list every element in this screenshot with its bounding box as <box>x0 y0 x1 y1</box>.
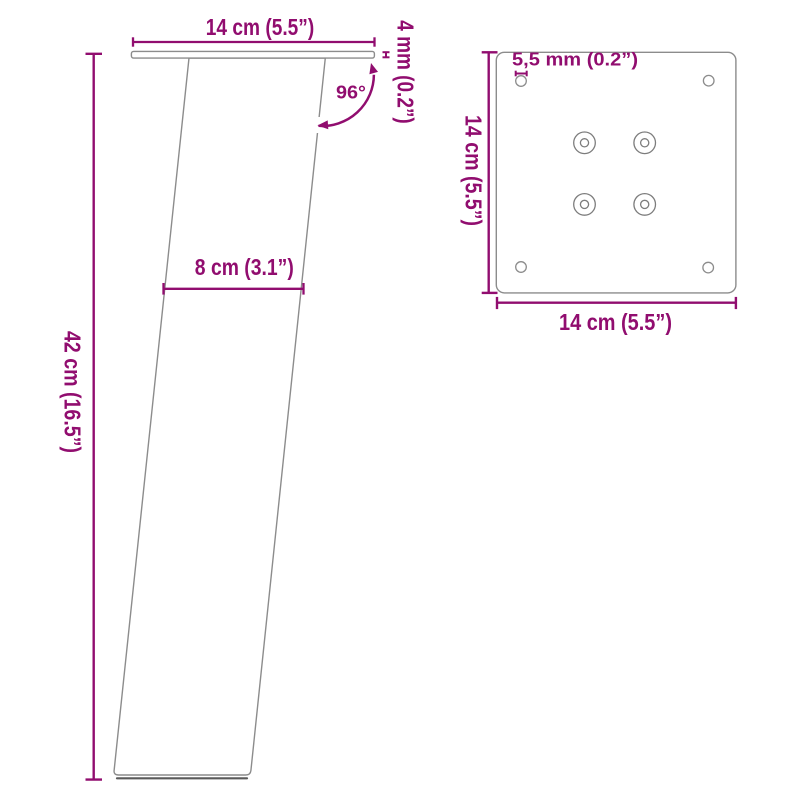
svg-text:5,5 mm (0.2”): 5,5 mm (0.2”) <box>512 50 638 70</box>
svg-text:42 cm (16.5”): 42 cm (16.5”) <box>60 331 86 453</box>
svg-text:14 cm (5.5”): 14 cm (5.5”) <box>206 14 315 40</box>
svg-text:14 cm (5.5”): 14 cm (5.5”) <box>461 115 487 226</box>
svg-text:8 cm (3.1”): 8 cm (3.1”) <box>195 254 294 280</box>
svg-text:96°: 96° <box>336 83 366 103</box>
svg-text:14 cm (5.5”): 14 cm (5.5”) <box>559 309 672 335</box>
svg-text:4 mm (0.2”): 4 mm (0.2”) <box>393 20 419 123</box>
